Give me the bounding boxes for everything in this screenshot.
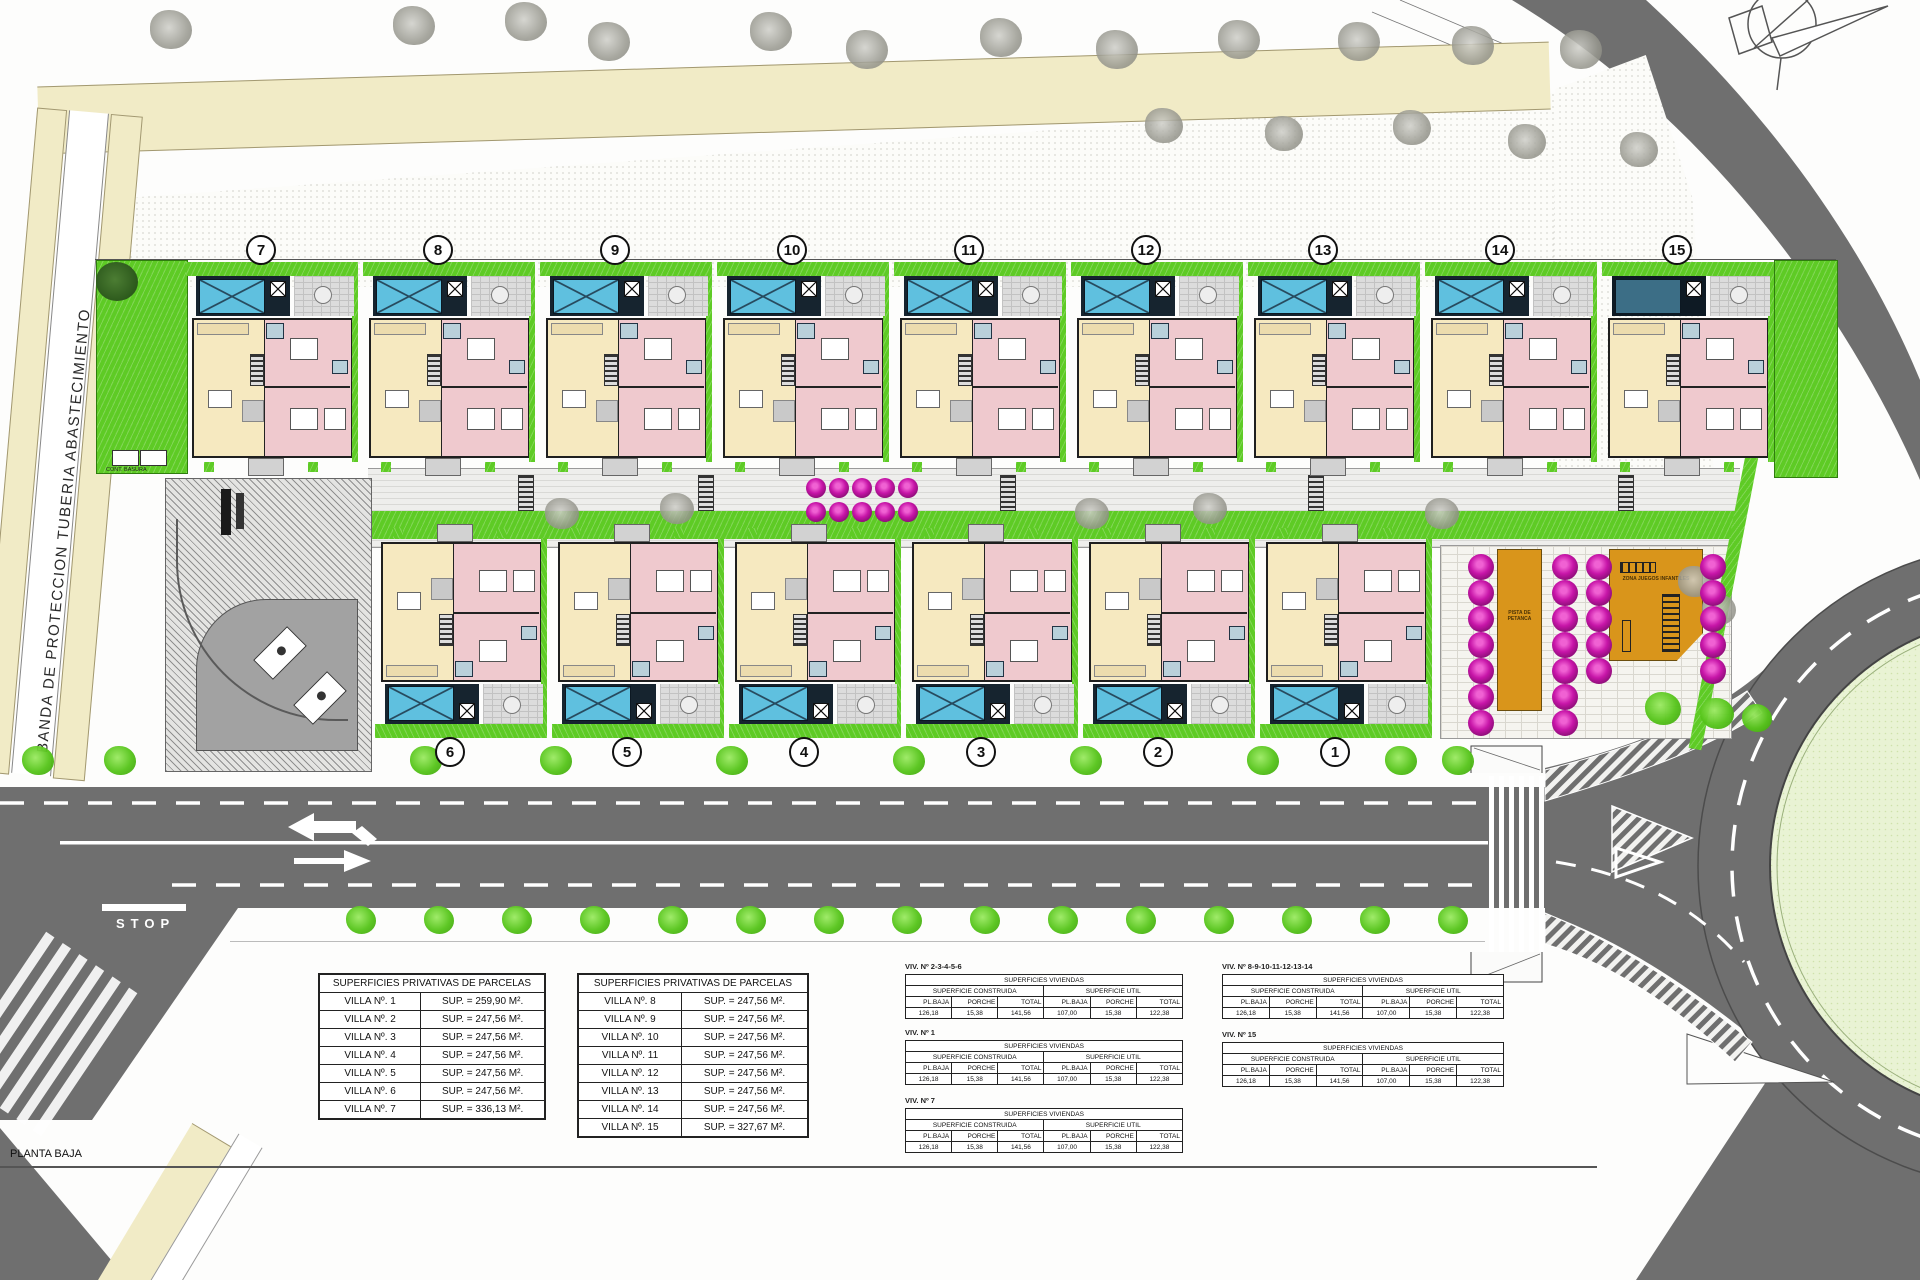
kitchen-counter — [728, 323, 780, 335]
table-cell: 15,38 — [1410, 1008, 1457, 1019]
villa-building — [1608, 318, 1768, 458]
table-cell: 141,56 — [1316, 1076, 1363, 1087]
swimming-pool — [742, 686, 808, 721]
table-cell: TOTAL — [998, 1131, 1044, 1142]
shrub — [1266, 462, 1276, 472]
tree-icon — [1360, 906, 1390, 934]
pool-equipment-icon — [1344, 703, 1360, 719]
tree-sketch-icon — [1620, 132, 1658, 167]
tree-icon — [658, 906, 688, 934]
bathroom — [698, 626, 714, 640]
umbrella-table-icon — [680, 696, 698, 714]
bathroom — [443, 323, 461, 339]
bed-icon — [644, 338, 672, 360]
bathroom — [1571, 360, 1587, 374]
bathroom — [863, 360, 879, 374]
bathroom — [1229, 626, 1245, 640]
tree-icon — [1385, 746, 1417, 775]
table-cell: TOTAL — [998, 997, 1044, 1008]
villa-number-badge: 8 — [423, 235, 453, 265]
tree-sketch-icon — [588, 22, 630, 61]
terrace — [1533, 276, 1593, 316]
umbrella-table-icon — [1211, 696, 1229, 714]
table-cell: SUP. = 247,56 M². — [682, 1029, 809, 1047]
end-garden-right — [1774, 260, 1838, 478]
bed-icon — [1386, 408, 1408, 430]
table-cell: SUPERFICIE UTIL — [1363, 1054, 1504, 1065]
table-cell: 122,38 — [1457, 1076, 1504, 1087]
porch — [437, 524, 473, 542]
villa-garden-strip — [729, 724, 901, 738]
table-cell: TOTAL — [1316, 1065, 1363, 1076]
tree-sketch-icon — [545, 498, 579, 529]
swimming-pool — [388, 686, 454, 721]
interior-wall — [1326, 386, 1412, 388]
bed-icon — [644, 408, 672, 430]
table-cell: SUP. = 247,56 M². — [421, 1011, 545, 1029]
bed-icon — [1364, 570, 1392, 592]
stairs-icon — [1666, 354, 1680, 386]
shrub — [570, 528, 580, 538]
bathroom — [632, 661, 650, 677]
villa-number-badge: 12 — [1131, 235, 1161, 265]
title-rule — [0, 1166, 1597, 1168]
flower-tree-icon — [829, 502, 849, 522]
dwelling-surface-table: SUPERFICIES VIVIENDASSUPERFICIE CONSTRUI… — [905, 1108, 1183, 1153]
table-row: VILLA Nº. 5SUP. = 247,56 M². — [319, 1065, 545, 1083]
tree-sketch-icon — [660, 493, 694, 524]
table-cell: PL.BAJA — [1044, 997, 1090, 1008]
interior-wall — [453, 613, 539, 615]
table-cell: 107,00 — [1044, 1142, 1090, 1153]
table-cell: SUPERFICIES VIVIENDAS — [906, 975, 1183, 986]
villa-building — [192, 318, 352, 458]
table-cell: 141,56 — [998, 1074, 1044, 1085]
pool-equipment-icon — [1155, 281, 1171, 297]
villa-building — [900, 318, 1060, 458]
table-cell: PL.BAJA — [1363, 997, 1410, 1008]
villa-building — [558, 542, 718, 682]
bed-icon — [1529, 408, 1557, 430]
table-row: VILLA Nº. 2SUP. = 247,56 M². — [319, 1011, 545, 1029]
flower-tree-icon — [1586, 580, 1612, 606]
villa-unit — [1425, 262, 1597, 476]
table-cell: VILLA Nº. 3 — [319, 1029, 421, 1047]
bathroom — [986, 661, 1004, 677]
flower-tree-icon — [1468, 632, 1494, 658]
umbrella-table-icon — [314, 286, 332, 304]
patio — [431, 578, 453, 600]
swimming-pool — [919, 686, 985, 721]
shrub — [485, 462, 495, 472]
swimming-pool — [376, 279, 442, 314]
table-cell: SUPERFICIES VIVIENDAS — [1223, 975, 1504, 986]
bed-icon — [479, 570, 507, 592]
table-cell: TOTAL — [1136, 1063, 1182, 1074]
table-cell: 107,00 — [1363, 1076, 1410, 1087]
table-cell: 15,38 — [1269, 1008, 1316, 1019]
bathroom — [1406, 626, 1422, 640]
tree-icon — [22, 746, 54, 775]
main-road — [0, 787, 1566, 908]
table-cell: 141,56 — [998, 1008, 1044, 1019]
bathroom — [1151, 323, 1169, 339]
shrub — [308, 462, 318, 472]
umbrella-table-icon — [503, 696, 521, 714]
pool-equipment-icon — [978, 281, 994, 297]
shrub — [1382, 528, 1392, 538]
porch — [1322, 524, 1358, 542]
shrub — [1028, 528, 1038, 538]
terrace — [837, 684, 897, 724]
villa-garden-strip — [906, 724, 1078, 738]
petanca-label: PISTA DE PETANCA — [1498, 550, 1541, 623]
patio — [419, 400, 441, 422]
bed-icon — [855, 408, 877, 430]
interior-wall — [795, 386, 881, 388]
villa-unit — [540, 262, 712, 476]
table-cell: PL.BAJA — [1044, 1131, 1090, 1142]
flower-tree-icon — [1586, 554, 1612, 580]
flower-tree-icon — [898, 502, 918, 522]
villa-garden-strip — [1260, 724, 1432, 738]
villa-building — [735, 542, 895, 682]
terrace — [648, 276, 708, 316]
parcel-surface-table: SUPERFICIES PRIVATIVAS DE PARCELASVILLA … — [577, 973, 809, 1138]
patio — [1127, 400, 1149, 422]
table-cell: 107,00 — [1044, 1074, 1090, 1085]
kitchen-counter — [1082, 323, 1134, 335]
bed-icon — [1364, 640, 1392, 662]
interior-wall — [264, 386, 350, 388]
pool-equipment-icon — [1167, 703, 1183, 719]
tree-sketch-icon — [505, 2, 547, 41]
interior-wall — [1161, 613, 1247, 615]
flower-tree-icon — [806, 478, 826, 498]
table-cell: 126,18 — [1223, 1076, 1270, 1087]
kitchen-counter — [1613, 323, 1665, 335]
table-cell: PORCHE — [1410, 997, 1457, 1008]
bathroom — [875, 626, 891, 640]
villa-unit — [552, 524, 724, 738]
table-row: VILLA Nº. 11SUP. = 247,56 M². — [578, 1047, 808, 1065]
table-cell: SUP. = 247,56 M². — [421, 1083, 545, 1101]
table-cell: PORCHE — [1269, 1065, 1316, 1076]
villa-building — [546, 318, 706, 458]
kitchen-counter — [1436, 323, 1488, 335]
table-cell: 15,38 — [1090, 1074, 1136, 1085]
bathroom — [1217, 360, 1233, 374]
swimming-pool — [1273, 686, 1339, 721]
tree-icon — [1048, 906, 1078, 934]
tree-icon — [1126, 906, 1156, 934]
table-cell: 122,38 — [1136, 1008, 1182, 1019]
tree-sketch-icon — [1560, 30, 1602, 69]
tree-sketch-icon — [1393, 110, 1431, 145]
flower-tree-icon — [1552, 684, 1578, 710]
villa-garden-strip — [375, 724, 547, 738]
table-cell: 15,38 — [1090, 1008, 1136, 1019]
stairs-icon — [793, 614, 807, 646]
porch — [779, 458, 815, 476]
tree-sketch-icon — [1452, 26, 1494, 65]
tree-icon — [540, 746, 572, 775]
terrace — [1014, 684, 1074, 724]
kitchen-counter — [1094, 665, 1146, 677]
villa-garden-strip — [1425, 262, 1597, 276]
table-cell: 126,18 — [906, 1074, 952, 1085]
dwelling-surface-table: SUPERFICIES VIVIENDASSUPERFICIE CONSTRUI… — [905, 974, 1183, 1019]
interior-wall — [1680, 386, 1766, 388]
bed-icon — [1563, 408, 1585, 430]
sidewalk-edge-line — [230, 941, 1485, 942]
bathroom — [1394, 360, 1410, 374]
table-cell: SUPERFICIES VIVIENDAS — [1223, 1043, 1504, 1054]
villa-unit — [1602, 262, 1774, 476]
table-cell: 122,38 — [1136, 1074, 1182, 1085]
bed-icon — [1352, 408, 1380, 430]
table-cell: VILLA Nº. 11 — [578, 1047, 682, 1065]
table-row: VILLA Nº. 3SUP. = 247,56 M². — [319, 1029, 545, 1047]
bathroom — [1505, 323, 1523, 339]
villa-number-badge: 1 — [1320, 737, 1350, 767]
shrub — [381, 462, 391, 472]
terrace — [1710, 276, 1770, 316]
villa-building — [1266, 542, 1426, 682]
tree-sketch-icon — [1075, 498, 1109, 529]
porch — [968, 524, 1004, 542]
table-cell: VILLA Nº. 6 — [319, 1083, 421, 1101]
bed-icon — [821, 338, 849, 360]
villa-building — [912, 542, 1072, 682]
table-cell: PORCHE — [1090, 1131, 1136, 1142]
patio — [1658, 400, 1680, 422]
table-cell: VILLA Nº. 5 — [319, 1065, 421, 1083]
porch — [1310, 458, 1346, 476]
table-cell: SUPERFICIE CONSTRUIDA — [1223, 986, 1363, 997]
villa-unit — [1083, 524, 1255, 738]
bed-icon — [467, 338, 495, 360]
terrace — [1368, 684, 1428, 724]
swimming-pool — [1096, 686, 1162, 721]
umbrella-table-icon — [857, 696, 875, 714]
tree-sketch-icon — [750, 12, 792, 51]
bed-icon — [1221, 570, 1243, 592]
tree-icon — [424, 906, 454, 934]
patio — [1481, 400, 1503, 422]
bed-icon — [1187, 570, 1215, 592]
table-cell: PL.BAJA — [906, 997, 952, 1008]
bathroom — [455, 661, 473, 677]
table-cell: SUPERFICIE CONSTRUIDA — [906, 1120, 1044, 1131]
table-cell: TOTAL — [1136, 997, 1182, 1008]
pool-equipment-icon — [813, 703, 829, 719]
pool-equipment-icon — [1332, 281, 1348, 297]
table-cell: SUP. = 327,67 M². — [682, 1119, 809, 1138]
table-cell: VILLA Nº. 4 — [319, 1047, 421, 1065]
bed-icon — [1352, 338, 1380, 360]
cont-basura-label: CONT. BASURA — [106, 467, 170, 473]
villa-garden-strip — [1602, 262, 1774, 276]
bed-icon — [1010, 640, 1038, 662]
shrub — [1370, 462, 1380, 472]
dining-table-icon — [928, 592, 952, 610]
umbrella-table-icon — [491, 286, 509, 304]
table-cell: VILLA Nº. 9 — [578, 1011, 682, 1029]
villa-garden-strip — [186, 262, 358, 276]
umbrella-table-icon — [1553, 286, 1571, 304]
table-cell: 15,38 — [1269, 1076, 1316, 1087]
north-arrow-icon — [1729, 0, 1888, 90]
kitchen-counter — [197, 323, 249, 335]
table-cell: 15,38 — [1090, 1142, 1136, 1153]
tree-icon — [716, 746, 748, 775]
bed-icon — [1398, 570, 1420, 592]
tree-icon — [1742, 704, 1772, 732]
flower-tree-icon — [1552, 658, 1578, 684]
table-cell: SUP. = 247,56 M². — [421, 1029, 545, 1047]
bed-icon — [833, 640, 861, 662]
villa-building — [1254, 318, 1414, 458]
stairs-icon — [958, 354, 972, 386]
shrub — [1278, 528, 1288, 538]
table-cell: SUP. = 247,56 M². — [682, 1065, 809, 1083]
villa-garden-strip — [1071, 262, 1243, 276]
table-cell: SUP. = 247,56 M². — [421, 1065, 545, 1083]
kitchen-counter — [740, 665, 792, 677]
shrub — [1205, 528, 1215, 538]
flower-tree-icon — [1586, 658, 1612, 684]
flower-tree-icon — [1700, 632, 1726, 658]
flower-tree-icon — [1586, 606, 1612, 632]
patio — [242, 400, 264, 422]
shrub — [1547, 462, 1557, 472]
porch — [425, 458, 461, 476]
villa-unit — [717, 262, 889, 476]
swimming-pool — [907, 279, 973, 314]
bed-icon — [1706, 408, 1734, 430]
villa-number-badge: 14 — [1485, 235, 1515, 265]
flower-tree-icon — [875, 502, 895, 522]
dining-table-icon — [1282, 592, 1306, 610]
dining-table-icon — [1624, 390, 1648, 408]
tree-sketch-icon — [150, 10, 192, 49]
villa-garden-strip — [552, 724, 724, 738]
tree-icon — [814, 906, 844, 934]
pool-equipment-icon — [459, 703, 475, 719]
pool-equipment-icon — [447, 281, 463, 297]
dining-table-icon — [1447, 390, 1471, 408]
tree-sketch-icon — [1145, 108, 1183, 143]
table-cell: PL.BAJA — [1223, 997, 1270, 1008]
swimming-pool — [553, 279, 619, 314]
umbrella-table-icon — [1034, 696, 1052, 714]
table-cell: VILLA Nº. 13 — [578, 1083, 682, 1101]
villa-garden-strip — [717, 262, 889, 276]
table-row: VILLA Nº. 1SUP. = 259,90 M². — [319, 993, 545, 1011]
bed-icon — [290, 408, 318, 430]
pool-equipment-icon — [636, 703, 652, 719]
table-cell: VILLA Nº. 2 — [319, 1011, 421, 1029]
table-cell: PL.BAJA — [1363, 1065, 1410, 1076]
flower-tree-icon — [806, 502, 826, 522]
trash-container-icon — [112, 450, 139, 466]
porch — [1133, 458, 1169, 476]
table-cell: 122,38 — [1457, 1008, 1504, 1019]
villa-building — [1077, 318, 1237, 458]
swimming-pool — [565, 686, 631, 721]
kitchen-counter — [1259, 323, 1311, 335]
tree-sketch-icon — [1425, 498, 1459, 529]
stairs-icon — [1000, 475, 1016, 511]
stairs-icon — [439, 614, 453, 646]
bed-icon — [998, 408, 1026, 430]
villa-number-badge: 6 — [435, 737, 465, 767]
tree-icon — [104, 746, 136, 775]
table-cell: 15,38 — [952, 1074, 998, 1085]
table-cell: 15,38 — [952, 1142, 998, 1153]
shrub — [393, 528, 403, 538]
flower-tree-icon — [1468, 658, 1494, 684]
swimming-pool — [1261, 279, 1327, 314]
terrace — [294, 276, 354, 316]
villa-unit — [1248, 262, 1420, 476]
bathroom — [1340, 661, 1358, 677]
table-row: VILLA Nº. 14SUP. = 247,56 M². — [578, 1101, 808, 1119]
table-cell: SUPERFICIE UTIL — [1044, 1120, 1183, 1131]
flower-tree-icon — [1700, 580, 1726, 606]
parcel-surface-table: SUPERFICIES PRIVATIVAS DE PARCELASVILLA … — [318, 973, 546, 1120]
table-cell: 107,00 — [1363, 1008, 1410, 1019]
shrub — [735, 462, 745, 472]
flower-tree-icon — [1552, 554, 1578, 580]
bathroom — [509, 360, 525, 374]
tree-icon — [1070, 746, 1102, 775]
table-cell: PL.BAJA — [1044, 1063, 1090, 1074]
table-row: VILLA Nº. 8SUP. = 247,56 M². — [578, 993, 808, 1011]
table-cell: PORCHE — [1090, 997, 1136, 1008]
flower-tree-icon — [852, 478, 872, 498]
tree-sketch-icon — [846, 30, 888, 69]
tree-icon — [1204, 906, 1234, 934]
parking-zone — [165, 478, 372, 772]
villa-garden-strip — [1083, 724, 1255, 738]
table-row: VILLA Nº. 15SUP. = 327,67 M². — [578, 1119, 808, 1138]
bathroom — [620, 323, 638, 339]
table-cell: 126,18 — [1223, 1008, 1270, 1019]
bed-icon — [1032, 408, 1054, 430]
umbrella-table-icon — [668, 286, 686, 304]
table-row: VILLA Nº. 6SUP. = 247,56 M². — [319, 1083, 545, 1101]
tree-sketch-icon — [1265, 116, 1303, 151]
bed-icon — [867, 570, 889, 592]
pool-equipment-icon — [1686, 281, 1702, 297]
terrace — [1179, 276, 1239, 316]
patio — [1316, 578, 1338, 600]
interior-wall — [1149, 386, 1235, 388]
bathroom — [521, 626, 537, 640]
table-cell: SUPERFICIE UTIL — [1363, 986, 1504, 997]
bed-icon — [290, 338, 318, 360]
dwelling-surface-table: SUPERFICIES VIVIENDASSUPERFICIE CONSTRUI… — [1222, 1042, 1504, 1087]
dwelling-table-label: VIV. Nº 2-3-4-5-6 — [905, 962, 962, 971]
site-plan-canvas: BANDA DE PROTECCION TUBERIA ABASTECIMIEN… — [0, 0, 1920, 1280]
table-cell: PL.BAJA — [906, 1063, 952, 1074]
table-row: VILLA Nº. 9SUP. = 247,56 M². — [578, 1011, 808, 1029]
shrub — [912, 462, 922, 472]
tree-sketch-icon — [1218, 20, 1260, 59]
terrace — [1356, 276, 1416, 316]
